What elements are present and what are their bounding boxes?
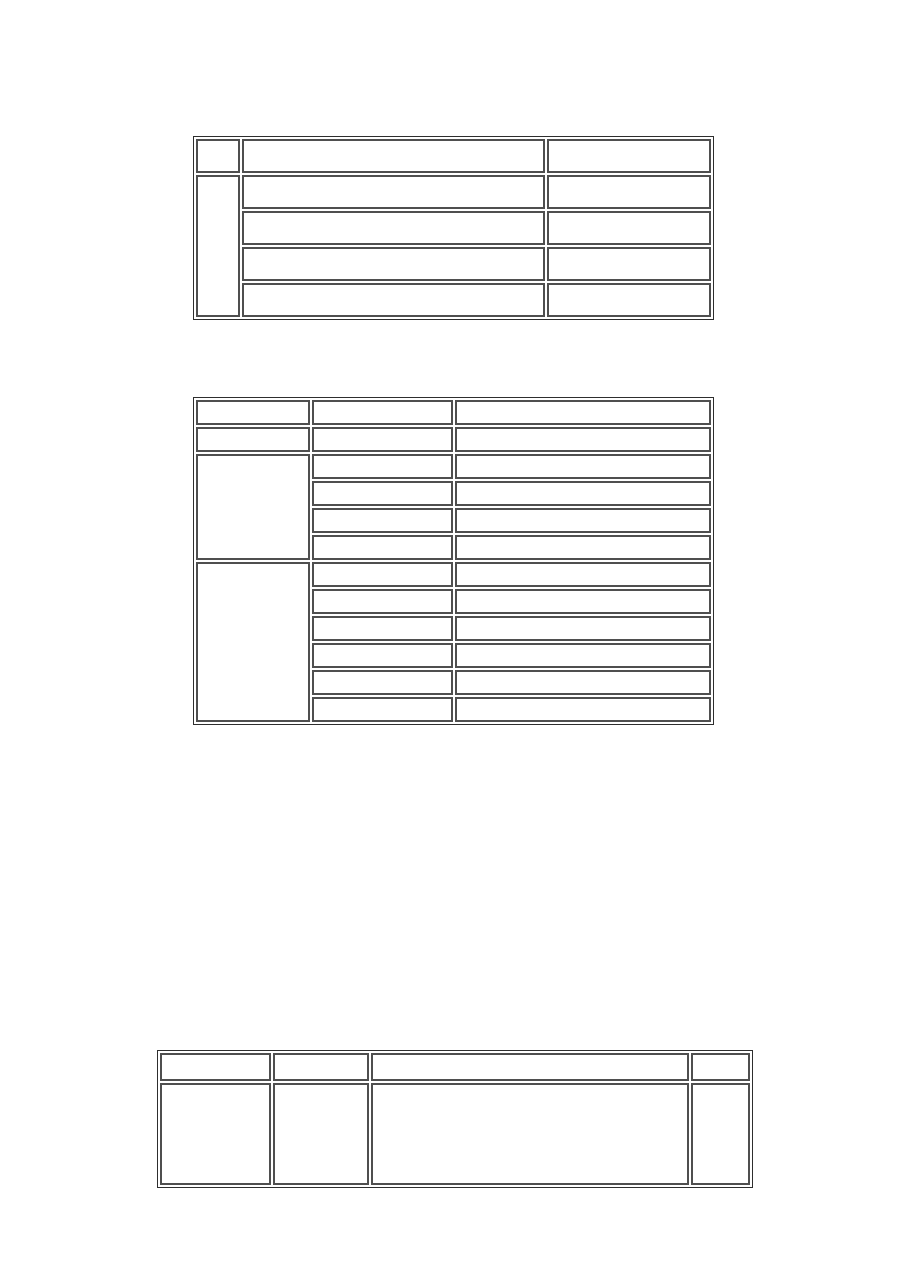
table-cell: [455, 589, 711, 614]
table-cell: [691, 1053, 750, 1081]
table-cell: [455, 697, 711, 722]
table-cell: [547, 175, 711, 209]
table-cell: [273, 1053, 369, 1081]
table-cell: [242, 283, 545, 317]
table-cell: [312, 454, 453, 479]
table-cell: [455, 400, 711, 425]
table-cell: [160, 1053, 271, 1081]
table-cell: [312, 535, 453, 560]
table-row: [196, 175, 711, 209]
table-cell: [371, 1083, 689, 1185]
table-row: [160, 1083, 750, 1185]
table-row: [196, 427, 711, 452]
bottom-table: [157, 1050, 753, 1188]
table-cell: [455, 643, 711, 668]
table-row: [196, 247, 711, 281]
table-cell: [455, 616, 711, 641]
table-row: [196, 139, 711, 173]
table-cell: [547, 211, 711, 245]
table-cell: [312, 481, 453, 506]
table-cell: [242, 175, 545, 209]
table-cell: [312, 589, 453, 614]
table-cell: [312, 697, 453, 722]
table-cell: [455, 481, 711, 506]
document-page: [0, 0, 909, 1286]
table-cell: [273, 1083, 369, 1185]
top-table: [193, 136, 714, 320]
table-cell: [547, 283, 711, 317]
table-cell: [312, 427, 453, 452]
table-cell: [242, 211, 545, 245]
table-cell: [455, 670, 711, 695]
table-cell: [312, 508, 453, 533]
table-cell: [455, 454, 711, 479]
table-cell: [455, 508, 711, 533]
table-cell: [312, 400, 453, 425]
table-cell: [691, 1083, 750, 1185]
table-cell: [455, 427, 711, 452]
table-cell-merged: [196, 562, 310, 722]
table-cell: [455, 562, 711, 587]
table-cell: [312, 670, 453, 695]
table-cell: [371, 1053, 689, 1081]
table-cell: [312, 562, 453, 587]
table-cell: [547, 139, 711, 173]
table-row: [196, 283, 711, 317]
table-row: [196, 211, 711, 245]
table-cell: [196, 139, 240, 173]
table-cell: [196, 427, 310, 452]
table-row: [196, 454, 711, 479]
table-row: [196, 400, 711, 425]
table-cell: [242, 139, 545, 173]
table-cell-merged: [196, 175, 240, 317]
table-row: [196, 562, 711, 587]
table-cell: [455, 535, 711, 560]
table-cell: [312, 616, 453, 641]
table-cell: [160, 1083, 271, 1185]
table-cell: [196, 400, 310, 425]
table-cell: [242, 247, 545, 281]
table-cell: [547, 247, 711, 281]
table-cell: [312, 643, 453, 668]
table-cell-merged: [196, 454, 310, 560]
middle-table: [193, 397, 714, 725]
table-row: [160, 1053, 750, 1081]
